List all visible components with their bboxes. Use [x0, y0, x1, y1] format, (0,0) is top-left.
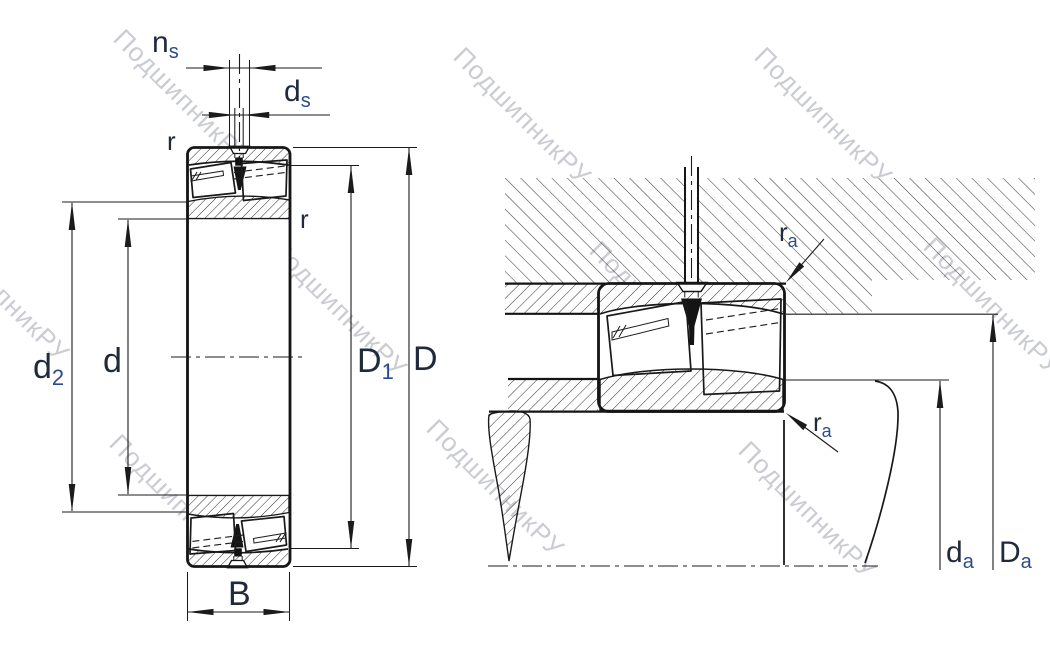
dimension-B: B [188, 572, 290, 621]
inner-ring-section [188, 196, 290, 219]
label-ds: ds [284, 75, 311, 112]
shaft-shoulder-section [508, 379, 598, 412]
label-ra-bottom: ra [813, 407, 833, 441]
label-da: da [946, 536, 975, 573]
drawing-canvas: ПодшипникРУ ПодшипникРУ ПодшипникРУ Подш… [0, 0, 1050, 650]
dimension-da: da [937, 380, 975, 573]
bearing-dimension-figure: ПодшипникРУ ПодшипникРУ ПодшипникРУ Подш… [0, 0, 1050, 650]
left-figure-bearing-section: ns ds r r d2 d [33, 26, 438, 621]
inner-ring-section [600, 369, 783, 411]
label-Da: Da [999, 536, 1033, 573]
watermark-text: ПодшипникРУ [448, 41, 598, 191]
dimension-ns: ns [152, 26, 322, 71]
right-figure-mounting: ra ra da Da [488, 156, 1035, 573]
label-r-outer: r [167, 126, 176, 156]
housing-shoulder-section [505, 284, 598, 314]
dimension-ds: ds [202, 75, 330, 118]
label-B: B [228, 575, 251, 613]
label-ns: ns [152, 26, 179, 63]
annotation-ra-bottom: ra [786, 407, 838, 452]
label-r-inner: r [300, 204, 309, 234]
label-d: d [103, 342, 122, 380]
watermark-text: ПодшипникРУ [733, 435, 883, 585]
label-D: D [413, 340, 438, 378]
shaft-shoulder-silhouette [865, 381, 898, 563]
watermark-text: ПодшипникРУ [749, 41, 899, 191]
watermark-text: ПодшипникРУ [0, 218, 75, 368]
